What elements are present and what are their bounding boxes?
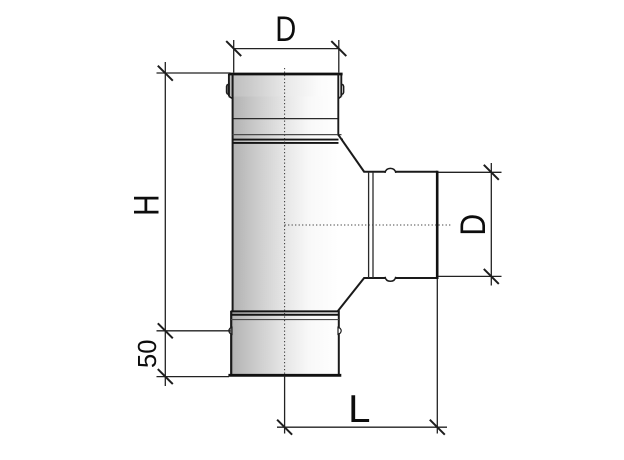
svg-text:L: L: [348, 388, 370, 431]
svg-text:50: 50: [134, 340, 162, 368]
svg-text:H: H: [126, 194, 166, 216]
svg-text:D: D: [275, 9, 296, 48]
svg-text:D: D: [453, 214, 493, 236]
